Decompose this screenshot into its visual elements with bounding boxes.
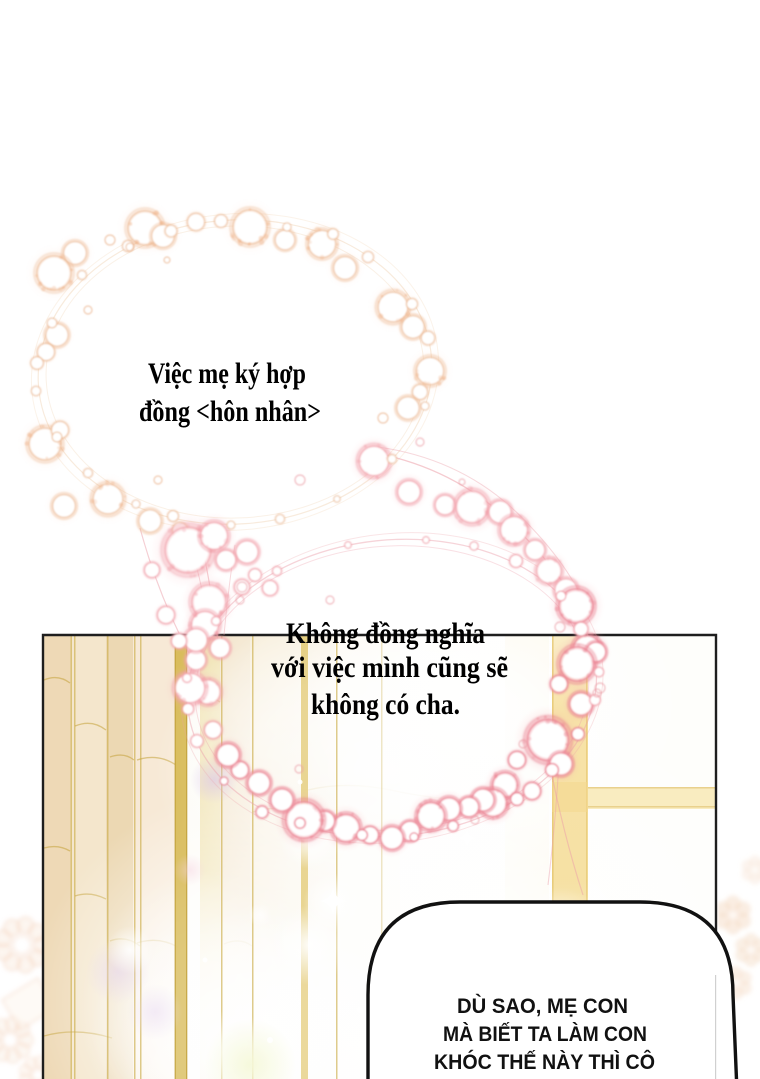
svg-text:Việc mẹ ký hợp: Việc mẹ ký hợp (148, 357, 306, 390)
svg-text:MÀ BIẾT TA LÀM CON: MÀ BIẾT TA LÀM CON (443, 1023, 647, 1046)
svg-text:Không đồng nghĩa: Không đồng nghĩa (286, 617, 485, 650)
svg-text:KHÓC THẾ NÀY THÌ CÔ: KHÓC THẾ NÀY THÌ CÔ (434, 1050, 655, 1074)
svg-text:đồng <hôn nhân>: đồng <hôn nhân> (139, 395, 321, 428)
svg-text:không có cha.: không có cha. (311, 688, 460, 721)
svg-text:DÙ SAO, MẸ CON: DÙ SAO, MẸ CON (457, 994, 628, 1018)
svg-text:với việc mình cũng sẽ: với việc mình cũng sẽ (271, 651, 508, 684)
